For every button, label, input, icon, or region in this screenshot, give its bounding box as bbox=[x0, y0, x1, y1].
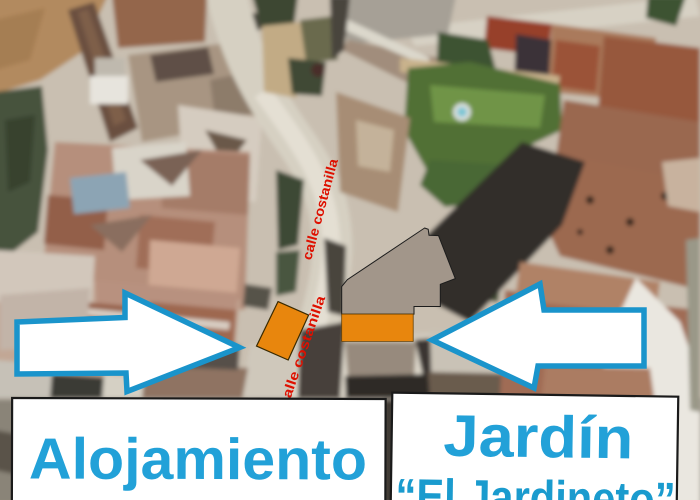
svg-text:Alojamiento: Alojamiento bbox=[29, 427, 367, 493]
svg-text:“El Jardineto”: “El Jardineto” bbox=[395, 470, 676, 500]
svg-text:Jardín: Jardín bbox=[443, 403, 634, 472]
